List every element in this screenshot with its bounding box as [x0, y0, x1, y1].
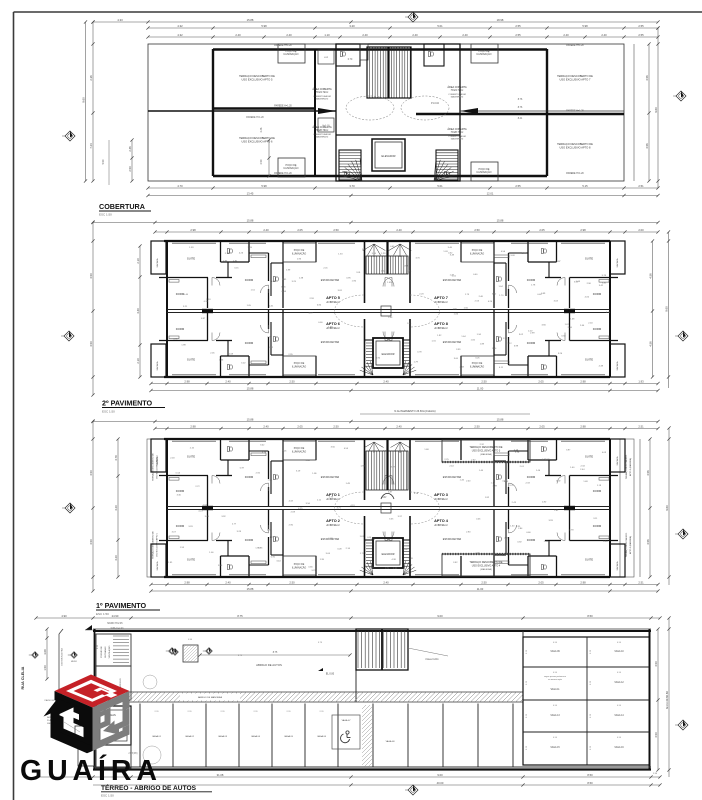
svg-text:8.50: 8.50 [587, 614, 593, 618]
svg-text:ESC 1:50: ESC 1:50 [102, 410, 115, 414]
svg-text:ILUMINAÇÃO: ILUMINAÇÃO [292, 366, 307, 369]
svg-text:DORM: DORM [245, 475, 254, 479]
svg-text:POÇO DE: POÇO DE [294, 448, 305, 450]
svg-text:VAGA 10: VAGA 10 [614, 650, 624, 653]
svg-text:SACADA: SACADA [156, 561, 159, 571]
svg-text:(MADEIRA): (MADEIRA) [480, 453, 492, 456]
svg-text:SACADA: SACADA [156, 258, 159, 268]
svg-text:M.CA.NI.60.60: M.CA.NI.60.60 [665, 691, 669, 709]
svg-text:2.40: 2.40 [383, 379, 389, 383]
svg-text:2.98: 2.98 [580, 580, 586, 584]
svg-text:4.20: 4.20 [114, 505, 118, 511]
svg-text:2.50: 2.50 [333, 424, 339, 428]
svg-text:ESC 1:50: ESC 1:50 [99, 213, 112, 217]
svg-text:5.90: 5.90 [102, 159, 105, 164]
svg-text:PAREDE H=1.20: PAREDE H=1.20 [274, 44, 292, 47]
svg-text:15.88: 15.88 [247, 386, 254, 390]
svg-text:VAGA 03: VAGA 03 [218, 735, 228, 738]
svg-text:2.40: 2.40 [563, 33, 569, 37]
svg-text:DORM: DORM [176, 327, 185, 331]
svg-text:VAGA 16: VAGA 16 [614, 746, 624, 749]
svg-text:H=24.72m²: H=24.72m² [451, 89, 464, 92]
svg-text:ILUMINAÇÃO: ILUMINAÇÃO [477, 53, 492, 56]
svg-text:N.ALINHAMENTO 26.66m(CLELIA): N.ALINHAMENTO 26.66m(CLELIA) [394, 409, 435, 413]
svg-text:15.88: 15.88 [497, 417, 504, 421]
svg-text:LUZ: LUZ [324, 57, 329, 59]
svg-text:TERRAÇO DESCOBERTO DE: TERRAÇO DESCOBERTO DE [152, 531, 155, 559]
svg-text:DORM: DORM [176, 524, 185, 528]
svg-text:SUITE: SUITE [187, 558, 195, 562]
svg-text:DORM: DORM [245, 341, 254, 345]
svg-text:2.40: 2.40 [235, 33, 241, 37]
svg-text:2.05: 2.05 [538, 379, 544, 383]
svg-text:2.50: 2.50 [333, 228, 339, 232]
svg-text:2.50: 2.50 [289, 580, 295, 584]
svg-text:2.40: 2.40 [396, 228, 402, 232]
svg-text:PAREDE H=1.20: PAREDE H=1.20 [274, 105, 292, 108]
svg-text:ESTAR/JANTAR: ESTAR/JANTAR [321, 476, 340, 479]
svg-text:PAREDE H=1.20: PAREDE H=1.20 [566, 110, 584, 113]
svg-text:15.88: 15.88 [497, 218, 504, 222]
svg-text:USO EXCLUSIVO APTO 5: USO EXCLUSIVO APTO 5 [242, 77, 274, 81]
svg-text:2.36: 2.36 [89, 75, 93, 81]
svg-text:SACADA: SACADA [156, 361, 159, 371]
svg-text:VAGA 09: VAGA 09 [550, 650, 560, 653]
svg-text:4.50: 4.50 [654, 661, 658, 667]
svg-text:EL 0.00: EL 0.00 [326, 673, 335, 676]
svg-text:4.90: 4.90 [61, 614, 67, 618]
svg-text:TERRAÇO DESCOBERTO DE: TERRAÇO DESCOBERTO DE [557, 74, 593, 78]
svg-text:2.40: 2.40 [412, 33, 418, 37]
svg-text:3.20: 3.20 [349, 24, 355, 28]
svg-text:2.05: 2.05 [539, 228, 545, 232]
svg-text:ILUMINAÇÃO: ILUMINAÇÃO [284, 53, 299, 56]
svg-text:VAGA 11: VAGA 11 [550, 688, 560, 691]
svg-text:ESTAR/JANTAR: ESTAR/JANTAR [321, 341, 340, 344]
svg-text:8.76: 8.76 [518, 99, 523, 101]
svg-text:GUAÍRA: GUAÍRA [20, 755, 162, 787]
svg-text:2º PAVIMENTO: 2º PAVIMENTO [102, 399, 153, 408]
svg-text:2.51: 2.51 [638, 580, 644, 584]
svg-text:8.75: 8.75 [237, 614, 243, 618]
svg-text:11.00: 11.00 [477, 587, 484, 591]
svg-text:4.32: 4.32 [177, 24, 183, 28]
svg-text:2.00: 2.00 [638, 228, 644, 232]
svg-text:SUITE: SUITE [585, 257, 593, 261]
svg-text:DORM: DORM [245, 538, 254, 542]
svg-text:DORM: DORM [593, 524, 602, 528]
svg-text:2.55: 2.55 [515, 24, 521, 28]
svg-text:2.05: 2.05 [538, 580, 544, 584]
svg-text:ESTAR/JANTAR: ESTAR/JANTAR [443, 476, 462, 479]
svg-text:4.40: 4.40 [136, 308, 140, 314]
svg-text:A=68.91m²: A=68.91m² [434, 523, 447, 527]
svg-text:MURO H=2.45: MURO H=2.45 [107, 623, 123, 625]
svg-text:5.15: 5.15 [582, 184, 588, 188]
svg-text:ILUMINAÇÃO: ILUMINAÇÃO [470, 253, 485, 256]
svg-text:2.10: 2.10 [136, 358, 140, 364]
svg-text:5.98: 5.98 [261, 184, 267, 188]
svg-text:TERRAÇO DESCOBERTO DE: TERRAÇO DESCOBERTO DE [239, 74, 275, 78]
svg-text:2.40: 2.40 [225, 580, 231, 584]
svg-text:2.50: 2.50 [260, 159, 263, 164]
svg-text:H=24.72m²: H=24.72m² [316, 91, 329, 94]
svg-text:DORM: DORM [245, 278, 254, 282]
svg-text:VAGA 01: VAGA 01 [152, 735, 162, 738]
svg-text:4.56: 4.56 [646, 539, 650, 545]
svg-text:9.60: 9.60 [665, 505, 669, 511]
svg-text:2.40: 2.40 [383, 580, 389, 584]
svg-text:APTO 4: APTO 4 [434, 519, 449, 523]
svg-text:9.60: 9.60 [664, 306, 668, 312]
svg-text:A=68.91m²: A=68.91m² [434, 300, 447, 304]
svg-text:2.40: 2.40 [462, 33, 468, 37]
svg-text:DORM: DORM [527, 341, 536, 345]
svg-text:SUITE: SUITE [585, 558, 593, 562]
svg-text:2.98: 2.98 [184, 580, 190, 584]
svg-text:SUITE: SUITE [187, 455, 195, 459]
svg-text:SUITE: SUITE [187, 257, 195, 261]
svg-text:ELEVADOR: ELEVADOR [382, 553, 395, 556]
svg-text:4.50: 4.50 [654, 732, 658, 738]
svg-text:SUITE: SUITE [187, 358, 195, 362]
svg-text:APTO 2 (MADEIRA): APTO 2 (MADEIRA) [629, 458, 632, 476]
svg-text:2.50: 2.50 [481, 580, 487, 584]
svg-text:POÇO DE: POÇO DE [294, 564, 305, 566]
svg-text:USO EXCLUSIVO APTO 6: USO EXCLUSIVO APTO 6 [242, 139, 274, 143]
svg-text:PAREDE H=1.20: PAREDE H=1.20 [246, 116, 264, 119]
svg-text:9.00: 9.00 [437, 773, 443, 777]
svg-text:MADEIRA SI: MADEIRA SI [451, 138, 464, 141]
svg-text:SACADA: SACADA [616, 561, 619, 571]
svg-text:1.50: 1.50 [43, 665, 47, 671]
svg-text:2.40: 2.40 [396, 424, 402, 428]
svg-text:2.98: 2.98 [580, 379, 586, 383]
svg-text:2.98: 2.98 [190, 228, 196, 232]
svg-text:VAGA 12: VAGA 12 [614, 681, 624, 684]
svg-text:8.75: 8.75 [273, 652, 278, 654]
svg-text:ESTAR/JANTAR: ESTAR/JANTAR [443, 279, 462, 282]
svg-text:ESC 1:50: ESC 1:50 [96, 612, 109, 616]
svg-text:11.00: 11.00 [477, 386, 484, 390]
svg-text:15.88: 15.88 [247, 18, 254, 22]
svg-text:TERRAÇO DESCOBERTO DE: TERRAÇO DESCOBERTO DE [557, 142, 593, 146]
svg-text:USO EXCLUSIVO APTO 4: USO EXCLUSIVO APTO 4 [472, 565, 501, 568]
svg-text:2.05: 2.05 [297, 228, 303, 232]
svg-text:H=1.20: H=1.20 [322, 125, 330, 127]
svg-text:DORM: DORM [593, 327, 602, 331]
svg-text:2.40: 2.40 [263, 424, 269, 428]
svg-text:ESTAR/JANTAR: ESTAR/JANTAR [443, 538, 462, 541]
svg-text:ELEVADOR: ELEVADOR [382, 353, 395, 356]
svg-text:2.50: 2.50 [474, 424, 480, 428]
svg-text:VAGA 06: VAGA 06 [317, 735, 327, 738]
svg-text:DORM: DORM [593, 489, 602, 493]
svg-text:5.98: 5.98 [261, 24, 267, 28]
svg-text:2.55: 2.55 [515, 184, 521, 188]
svg-text:4.33: 4.33 [117, 18, 123, 22]
svg-text:2.51: 2.51 [638, 424, 644, 428]
svg-text:VAGA 15: VAGA 15 [550, 746, 560, 749]
svg-text:APTO 2: APTO 2 [326, 519, 340, 523]
svg-text:VAGA 04: VAGA 04 [251, 735, 261, 738]
svg-text:VAGA 13: VAGA 13 [550, 714, 560, 717]
svg-text:12.01: 12.01 [487, 191, 494, 195]
svg-text:DORM: DORM [527, 538, 536, 542]
svg-text:ILUMINAÇÃO: ILUMINAÇÃO [477, 171, 492, 174]
svg-text:5.98: 5.98 [582, 24, 588, 28]
svg-text:2.40: 2.40 [286, 33, 292, 37]
svg-text:SACADA: SACADA [616, 456, 619, 466]
svg-text:4.50: 4.50 [89, 341, 93, 347]
svg-text:7.24: 7.24 [89, 143, 93, 149]
svg-text:4.70: 4.70 [177, 184, 183, 188]
svg-text:ILUMINAÇÃO: ILUMINAÇÃO [292, 253, 307, 256]
svg-text:4.56: 4.56 [645, 75, 649, 81]
svg-text:2.50: 2.50 [481, 379, 487, 383]
svg-text:SUITE: SUITE [585, 358, 593, 362]
svg-text:A=68.91m²: A=68.91m² [326, 300, 339, 304]
svg-text:i=área 0.22m: i=área 0.22m [425, 658, 439, 661]
svg-text:3.08: 3.08 [43, 649, 47, 655]
svg-text:ENTRADA E: ENTRADA E [104, 646, 107, 658]
svg-text:SUITE: SUITE [585, 455, 593, 459]
svg-text:2.10: 2.10 [136, 258, 140, 264]
svg-text:P1.0.02: P1.0.02 [431, 103, 440, 105]
svg-text:2.55: 2.55 [638, 24, 644, 28]
svg-text:DORM: DORM [176, 489, 185, 493]
svg-text:8.50: 8.50 [587, 781, 593, 785]
svg-text:USO EXCLUSIVO APTO 3: USO EXCLUSIVO APTO 3 [472, 450, 501, 453]
svg-text:4.50: 4.50 [89, 273, 93, 279]
svg-text:8.76: 8.76 [518, 107, 523, 109]
svg-text:VAGA 14: VAGA 14 [614, 714, 624, 717]
svg-text:(MADEIRA): (MADEIRA) [480, 568, 492, 571]
svg-text:3.70: 3.70 [349, 184, 355, 188]
svg-text:2.05: 2.05 [539, 424, 545, 428]
svg-text:GAS: GAS [110, 713, 116, 717]
svg-text:4.50: 4.50 [89, 470, 93, 476]
svg-text:COBERTURA: COBERTURA [99, 202, 145, 211]
svg-text:9.60: 9.60 [654, 107, 658, 113]
svg-text:PORTÃO DE: PORTÃO DE [100, 645, 103, 657]
svg-text:ILUMINAÇÃO: ILUMINAÇÃO [292, 567, 307, 570]
svg-text:USO BICICLETAS: USO BICICLETAS [61, 647, 64, 665]
svg-text:MADEIRA SI: MADEIRA SI [451, 96, 464, 99]
svg-text:5.01: 5.01 [437, 184, 443, 188]
svg-text:ABRIGO DE AUTOS: ABRIGO DE AUTOS [256, 663, 282, 667]
svg-text:ELEVADOR: ELEVADOR [382, 154, 396, 158]
svg-text:2.98: 2.98 [580, 424, 586, 428]
svg-text:ILUMINAÇÃO: ILUMINAÇÃO [284, 167, 299, 170]
svg-text:H=28.79m²: H=28.79m² [451, 131, 464, 134]
svg-text:APTO 2 (MADEIRA): APTO 2 (MADEIRA) [629, 536, 632, 554]
svg-text:DORM: DORM [593, 292, 602, 296]
svg-text:2.98: 2.98 [190, 424, 196, 428]
svg-text:4.56: 4.56 [648, 273, 652, 279]
svg-text:2.46: 2.46 [260, 127, 263, 132]
svg-text:8.41: 8.41 [518, 118, 523, 120]
svg-text:vagas presas pertencem: vagas presas pertencem [544, 675, 566, 678]
svg-text:9.00: 9.00 [437, 614, 443, 618]
svg-text:4.56: 4.56 [648, 341, 652, 347]
svg-text:POÇO DE: POÇO DE [294, 250, 305, 252]
svg-text:ACESSO: ACESSO [119, 678, 122, 687]
svg-text:DORM: DORM [527, 278, 536, 282]
svg-text:4.78: 4.78 [114, 455, 118, 461]
svg-text:A=68.91m²: A=68.91m² [326, 523, 339, 527]
svg-text:2.51: 2.51 [638, 184, 644, 188]
svg-text:ao mesmo apto: ao mesmo apto [548, 678, 563, 681]
svg-text:2.50: 2.50 [289, 379, 295, 383]
svg-text:MURO: MURO [71, 661, 78, 663]
svg-text:A=68.91m²: A=68.91m² [434, 497, 447, 501]
svg-text:APTO 8: APTO 8 [434, 322, 448, 326]
svg-text:SACADA: SACADA [616, 361, 619, 371]
svg-text:VAGA 07: VAGA 07 [342, 719, 352, 722]
svg-text:1.93: 1.93 [638, 379, 644, 383]
svg-text:VAGA 08: VAGA 08 [386, 740, 396, 743]
svg-text:1º PAVIMENTO: 1º PAVIMENTO [96, 601, 147, 610]
svg-text:A=68.91m²: A=68.91m² [434, 326, 447, 330]
svg-text:13.45: 13.45 [247, 191, 254, 195]
svg-text:POÇO DE: POÇO DE [472, 363, 483, 365]
svg-text:APTO 5: APTO 5 [326, 296, 340, 300]
svg-text:2.50: 2.50 [128, 166, 132, 172]
svg-text:2.40: 2.40 [225, 379, 231, 383]
svg-text:DORM: DORM [527, 475, 536, 479]
svg-text:2.05: 2.05 [297, 424, 303, 428]
svg-text:4.20: 4.20 [114, 555, 118, 561]
svg-text:ESC 1:50: ESC 1:50 [101, 794, 114, 798]
svg-text:ESTAR/JANTAR: ESTAR/JANTAR [321, 279, 340, 282]
svg-text:15.88: 15.88 [247, 218, 254, 222]
svg-text:4.56: 4.56 [646, 470, 650, 476]
svg-text:4.50: 4.50 [89, 539, 93, 545]
svg-text:0.70: 0.70 [348, 59, 353, 61]
svg-text:2.40: 2.40 [362, 33, 368, 37]
svg-text:2.40: 2.40 [601, 33, 607, 37]
svg-text:2.55: 2.55 [515, 33, 521, 37]
svg-text:2.55: 2.55 [638, 33, 644, 37]
svg-text:VAGA 02: VAGA 02 [185, 735, 195, 738]
svg-text:2.98: 2.98 [580, 228, 586, 232]
svg-text:4.56: 4.56 [645, 143, 649, 149]
svg-text:POÇO DE: POÇO DE [472, 250, 483, 252]
svg-text:MADEIRA SI: MADEIRA SI [316, 98, 329, 101]
svg-text:PAREDE H=1.20: PAREDE H=1.20 [566, 172, 584, 175]
svg-text:VAGA 05: VAGA 05 [284, 735, 294, 738]
svg-text:1.10: 1.10 [324, 33, 330, 37]
svg-text:RUA CLELIA: RUA CLELIA [21, 666, 25, 689]
svg-text:MADEIRA SI: MADEIRA SI [316, 136, 329, 139]
svg-text:SACADA: SACADA [156, 456, 159, 466]
svg-text:POÇO DE: POÇO DE [294, 363, 305, 365]
svg-text:APTO 7: APTO 7 [434, 296, 448, 300]
svg-text:15.88: 15.88 [247, 417, 254, 421]
svg-text:2.46: 2.46 [128, 146, 132, 152]
svg-text:2.40: 2.40 [263, 228, 269, 232]
svg-text:TERRAÇO DESCOBERTO DE: TERRAÇO DESCOBERTO DE [152, 453, 155, 481]
svg-text:2.50: 2.50 [474, 228, 480, 232]
svg-text:24.90: 24.90 [112, 614, 119, 618]
svg-text:ILUMINAÇÃO: ILUMINAÇÃO [292, 451, 307, 454]
svg-text:8.50: 8.50 [587, 773, 593, 777]
svg-text:9.60: 9.60 [81, 97, 85, 103]
svg-text:PAREDE H=1.20: PAREDE H=1.20 [566, 44, 584, 47]
svg-text:VENTILAÇÃO: VENTILAÇÃO [108, 645, 111, 658]
svg-text:USO EXCLUSIVO APTO 7: USO EXCLUSIVO APTO 7 [560, 77, 592, 81]
svg-text:31.08: 31.08 [217, 773, 224, 777]
svg-text:2.98: 2.98 [184, 379, 190, 383]
svg-text:SACADA: SACADA [616, 258, 619, 268]
svg-text:PAREDE H=1.20: PAREDE H=1.20 [274, 172, 292, 175]
svg-text:ESTAR/JANTAR: ESTAR/JANTAR [443, 341, 462, 344]
svg-text:15.88: 15.88 [247, 587, 254, 591]
svg-text:40.00: 40.00 [437, 781, 444, 785]
svg-text:4.32: 4.32 [177, 33, 183, 37]
svg-text:USO EXCLUSIVO APTO 8: USO EXCLUSIVO APTO 8 [560, 145, 592, 149]
svg-text:5.01: 5.01 [437, 24, 443, 28]
svg-text:ABRIGO DE MANOBRA: ABRIGO DE MANOBRA [198, 696, 222, 699]
svg-text:18.98: 18.98 [497, 18, 504, 22]
